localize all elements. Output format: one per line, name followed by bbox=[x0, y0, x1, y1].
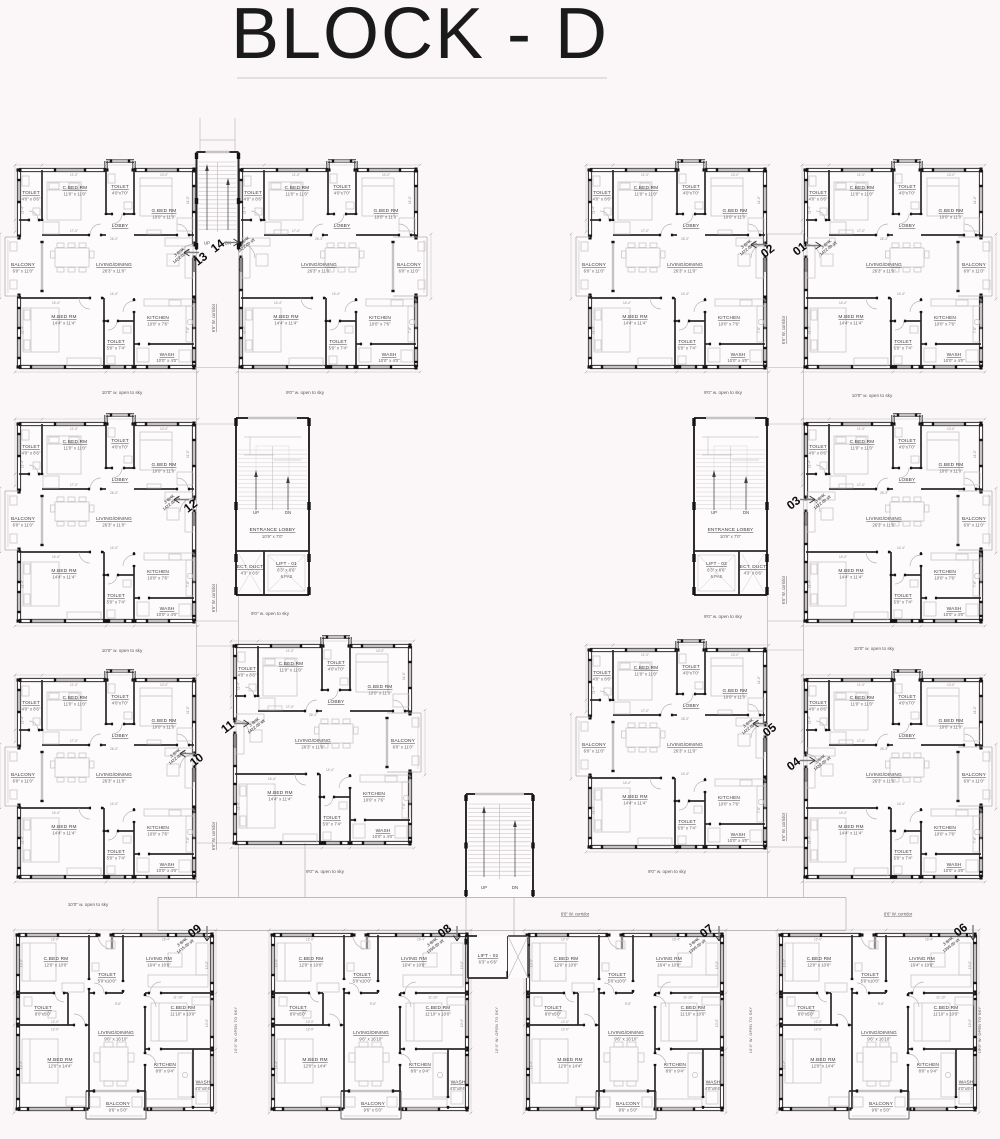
svg-text:9'0" w. open to sky: 9'0" w. open to sky bbox=[306, 869, 345, 874]
svg-text:12'0" x 10'0": 12'0" x 10'0" bbox=[299, 963, 323, 968]
svg-text:BALCONY: BALCONY bbox=[11, 772, 36, 778]
svg-text:M.BED RM: M.BED RM bbox=[810, 1057, 835, 1063]
svg-text:BALCONY: BALCONY bbox=[869, 1101, 894, 1107]
svg-text:11'-0": 11'-0" bbox=[186, 706, 190, 714]
svg-text:11'10" x 10'0": 11'10" x 10'0" bbox=[170, 1012, 196, 1017]
svg-text:5'0" x 7'4": 5'0" x 7'4" bbox=[894, 600, 913, 605]
svg-text:LIFT - 02: LIFT - 02 bbox=[478, 953, 499, 959]
svg-text:10'-0": 10'-0" bbox=[947, 683, 955, 687]
svg-text:11'-4": 11'-4" bbox=[243, 326, 247, 334]
svg-text:M.BED RM: M.BED RM bbox=[622, 794, 647, 800]
svg-text:11'-0": 11'-0" bbox=[70, 683, 78, 687]
svg-text:4'0"x7'0": 4'0"x7'0" bbox=[683, 191, 700, 196]
svg-text:10'0" x 7'6": 10'0" x 7'6" bbox=[934, 576, 956, 581]
svg-text:10'9" x 7'0": 10'9" x 7'0" bbox=[262, 534, 284, 539]
svg-text:10'0" w. open to sky: 10'0" w. open to sky bbox=[852, 393, 893, 398]
svg-text:G.BED RM: G.BED RM bbox=[723, 688, 748, 694]
svg-text:8'0"x5'0": 8'0"x5'0" bbox=[35, 1012, 52, 1017]
svg-text:10'-0": 10'-0" bbox=[160, 173, 168, 177]
svg-text:9'0" w. open to sky: 9'0" w. open to sky bbox=[251, 611, 290, 616]
svg-text:TOILET: TOILET bbox=[107, 849, 125, 855]
svg-text:12'-0": 12'-0" bbox=[561, 1028, 569, 1032]
svg-text:12'0" x 10'0": 12'0" x 10'0" bbox=[44, 963, 68, 968]
svg-text:10'0" x 4'0": 10'0" x 4'0" bbox=[156, 358, 178, 363]
svg-text:LOBBY: LOBBY bbox=[334, 223, 351, 229]
svg-text:TOILET: TOILET bbox=[323, 815, 341, 821]
svg-text:LIFT - 01: LIFT - 01 bbox=[276, 561, 297, 567]
svg-text:9'-6": 9'-6" bbox=[370, 1002, 376, 1006]
svg-text:14'-4": 14'-4" bbox=[20, 1061, 24, 1069]
svg-text:11'-0": 11'-0" bbox=[641, 653, 649, 657]
svg-text:6'0" x 11'0": 6'0" x 11'0" bbox=[13, 269, 34, 274]
svg-text:M.BED RM: M.BED RM bbox=[838, 314, 863, 320]
svg-text:6'0" x 11'0": 6'0" x 11'0" bbox=[13, 523, 34, 528]
svg-text:KITCHEN: KITCHEN bbox=[934, 315, 956, 321]
svg-text:11'0" x 11'0": 11'0" x 11'0" bbox=[635, 672, 658, 677]
svg-text:5'0" x 7'4": 5'0" x 7'4" bbox=[329, 346, 348, 351]
svg-text:14'4" x 11'4": 14'4" x 11'4" bbox=[623, 801, 647, 806]
svg-text:G.BED RM: G.BED RM bbox=[368, 684, 393, 690]
svg-text:C.BED RM: C.BED RM bbox=[850, 695, 875, 701]
svg-text:LOBBY: LOBBY bbox=[112, 223, 129, 229]
svg-text:BALCONY: BALCONY bbox=[11, 262, 36, 268]
svg-text:TOILET: TOILET bbox=[107, 339, 125, 345]
svg-text:11'-0": 11'-0" bbox=[973, 706, 977, 714]
svg-text:KITCHEN: KITCHEN bbox=[718, 315, 740, 321]
svg-text:TOILET: TOILET bbox=[809, 190, 827, 196]
svg-text:6'0" x 11'0": 6'0" x 11'0" bbox=[584, 269, 605, 274]
svg-text:11'-4": 11'-4" bbox=[808, 580, 812, 588]
svg-text:4'0"x7'0": 4'0"x7'0" bbox=[899, 445, 916, 450]
svg-text:ENTRANCE LOBBY: ENTRANCE LOBBY bbox=[708, 527, 754, 533]
svg-text:11'-4": 11'-4" bbox=[237, 682, 241, 690]
svg-text:BALCONY: BALCONY bbox=[582, 262, 607, 268]
svg-text:M.BED RM: M.BED RM bbox=[47, 1057, 72, 1063]
svg-text:C.BED RM: C.BED RM bbox=[850, 439, 875, 445]
svg-text:C.BED RM: C.BED RM bbox=[426, 1005, 451, 1011]
svg-text:26'3" x 11'0": 26'3" x 11'0" bbox=[307, 269, 331, 274]
svg-text:10'0" x 11'0": 10'0" x 11'0" bbox=[939, 215, 963, 220]
svg-text:11'10" x 10'0": 11'10" x 10'0" bbox=[425, 1012, 451, 1017]
svg-text:TOILET: TOILET bbox=[329, 339, 347, 345]
svg-text:M.BED RM: M.BED RM bbox=[273, 314, 298, 320]
svg-text:9'6" x 16'10": 9'6" x 16'10" bbox=[614, 1037, 638, 1042]
svg-text:TOILET: TOILET bbox=[327, 660, 345, 666]
svg-text:10'0" x 11'0": 10'0" x 11'0" bbox=[374, 215, 398, 220]
svg-text:26'3" x 11'0": 26'3" x 11'0" bbox=[872, 523, 896, 528]
svg-text:17'-0": 17'-0" bbox=[70, 229, 78, 233]
svg-text:12'-0": 12'-0" bbox=[306, 1020, 314, 1024]
svg-text:C.BED RM: C.BED RM bbox=[171, 1005, 196, 1011]
svg-text:KITCHEN: KITCHEN bbox=[147, 825, 169, 831]
svg-text:10'0" x 11'0": 10'0" x 11'0" bbox=[939, 469, 963, 474]
svg-text:4'3" x 6'6": 4'3" x 6'6" bbox=[241, 571, 260, 576]
svg-text:11'-4": 11'-4" bbox=[808, 460, 812, 468]
svg-text:10'0" x 4'0": 10'0" x 4'0" bbox=[943, 868, 965, 873]
svg-text:WASH: WASH bbox=[451, 1080, 466, 1086]
svg-text:10'0" x 4'0": 10'0" x 4'0" bbox=[727, 838, 749, 843]
svg-text:5'0" x 7'4": 5'0" x 7'4" bbox=[894, 856, 913, 861]
svg-text:11'10" x 10'0": 11'10" x 10'0" bbox=[680, 1012, 706, 1017]
svg-text:TOILET: TOILET bbox=[809, 444, 827, 450]
svg-text:10'-0": 10'-0" bbox=[968, 1019, 972, 1027]
svg-text:10'0" x 7'6": 10'0" x 7'6" bbox=[147, 832, 169, 837]
svg-text:10'0" x 7'6": 10'0" x 7'6" bbox=[934, 832, 956, 837]
svg-text:14'-4": 14'-4" bbox=[332, 292, 340, 296]
svg-text:10'0" x 7'6": 10'0" x 7'6" bbox=[718, 322, 740, 327]
svg-text:LIVING/DINING: LIVING/DINING bbox=[667, 262, 703, 268]
svg-text:8'0"x5'0": 8'0"x5'0" bbox=[545, 1012, 562, 1017]
svg-text:9'6" x 5'0": 9'6" x 5'0" bbox=[109, 1108, 128, 1113]
svg-text:10'0" w. open to sky: 10'0" w. open to sky bbox=[102, 390, 143, 395]
svg-text:11'0" x 11'0": 11'0" x 11'0" bbox=[286, 192, 309, 197]
svg-text:12'-0": 12'-0" bbox=[561, 1020, 569, 1024]
svg-text:10'-0": 10'-0" bbox=[160, 427, 168, 431]
svg-text:BALCONY: BALCONY bbox=[962, 516, 987, 522]
svg-text:10'0" x 7'6": 10'0" x 7'6" bbox=[147, 322, 169, 327]
svg-text:4'0" x 8'6": 4'0" x 8'6" bbox=[22, 451, 41, 456]
svg-text:C.BED RM: C.BED RM bbox=[634, 665, 659, 671]
svg-text:6.PAS: 6.PAS bbox=[281, 574, 293, 579]
svg-text:14'-4": 14'-4" bbox=[530, 1061, 534, 1069]
svg-text:11'-0": 11'-0" bbox=[402, 672, 406, 680]
svg-text:10'-0": 10'-0" bbox=[947, 173, 955, 177]
svg-text:TOILET: TOILET bbox=[608, 972, 626, 978]
svg-text:14'-4": 14'-4" bbox=[839, 555, 847, 559]
svg-text:7'-6": 7'-6" bbox=[186, 837, 190, 843]
svg-text:10'0" x 11'0": 10'0" x 11'0" bbox=[939, 725, 963, 730]
svg-text:10'0" x 11'0": 10'0" x 11'0" bbox=[152, 725, 176, 730]
svg-text:6'0" x 11'0": 6'0" x 11'0" bbox=[964, 523, 985, 528]
svg-text:10'-0": 10'-0" bbox=[783, 959, 787, 967]
svg-text:17'-0": 17'-0" bbox=[70, 483, 78, 487]
svg-text:26'-3": 26'-3" bbox=[110, 491, 118, 495]
svg-text:C.BED RM: C.BED RM bbox=[850, 185, 875, 191]
svg-text:BALCONY: BALCONY bbox=[391, 738, 416, 744]
svg-text:26'3" x 11'0": 26'3" x 11'0" bbox=[673, 269, 697, 274]
svg-text:16'-4": 16'-4" bbox=[417, 938, 425, 942]
svg-text:C.BED RM: C.BED RM bbox=[285, 185, 310, 191]
svg-text:C.BED RM: C.BED RM bbox=[554, 956, 579, 962]
svg-text:11'-0": 11'-0" bbox=[292, 173, 300, 177]
svg-text:BLOCK - D: BLOCK - D bbox=[231, 0, 609, 74]
svg-text:10'9" x 7'0": 10'9" x 7'0" bbox=[720, 534, 742, 539]
svg-text:12'-0": 12'-0" bbox=[51, 1028, 59, 1032]
svg-text:10'-0": 10'-0" bbox=[205, 961, 209, 969]
svg-text:6'6" W. corridor: 6'6" W. corridor bbox=[781, 315, 786, 344]
svg-text:4'0"x7'0": 4'0"x7'0" bbox=[112, 445, 129, 450]
svg-text:ENTRANCE LOBBY: ENTRANCE LOBBY bbox=[250, 527, 296, 533]
svg-text:6'6" W. corridor: 6'6" W. corridor bbox=[561, 912, 590, 917]
svg-text:LIVING RM: LIVING RM bbox=[656, 956, 682, 962]
svg-text:5'0" x 7'4": 5'0" x 7'4" bbox=[323, 822, 342, 827]
svg-text:LIVING/DINING: LIVING/DINING bbox=[861, 1030, 897, 1036]
svg-text:WASH: WASH bbox=[196, 1080, 211, 1086]
svg-text:UP: UP bbox=[253, 510, 259, 515]
svg-text:UP: UP bbox=[711, 510, 717, 515]
svg-text:TOILET: TOILET bbox=[289, 1005, 307, 1011]
svg-text:5'0" x 7'4": 5'0" x 7'4" bbox=[678, 826, 697, 831]
svg-text:5'0"x10'0": 5'0"x10'0" bbox=[353, 979, 372, 984]
svg-text:10'0" x 11'0": 10'0" x 11'0" bbox=[152, 469, 176, 474]
svg-text:5'0" x 7'4": 5'0" x 7'4" bbox=[107, 346, 126, 351]
svg-text:10'-0": 10'-0" bbox=[382, 173, 390, 177]
svg-text:10'0" x 7'6": 10'0" x 7'6" bbox=[718, 802, 740, 807]
svg-text:17'-0": 17'-0" bbox=[857, 739, 865, 743]
svg-text:11'-4": 11'-4" bbox=[808, 206, 812, 214]
svg-text:14'-4": 14'-4" bbox=[110, 546, 118, 550]
svg-text:4'0" x 8'6": 4'0" x 8'6" bbox=[244, 197, 263, 202]
svg-text:7'-6": 7'-6" bbox=[402, 803, 406, 809]
svg-text:LOBBY: LOBBY bbox=[899, 477, 916, 483]
svg-text:11'-10": 11'-10" bbox=[683, 996, 693, 1000]
svg-text:6'6" W. corridor: 6'6" W. corridor bbox=[211, 303, 216, 332]
svg-text:5'0"x10'0": 5'0"x10'0" bbox=[861, 979, 880, 984]
svg-text:C.BED RM: C.BED RM bbox=[44, 956, 69, 962]
svg-text:12'-0": 12'-0" bbox=[814, 1028, 822, 1032]
svg-text:KITCHEN: KITCHEN bbox=[934, 569, 956, 575]
svg-text:G.BED RM: G.BED RM bbox=[939, 462, 964, 468]
svg-text:6'0" x 11'0": 6'0" x 11'0" bbox=[393, 745, 414, 750]
svg-text:BALCONY: BALCONY bbox=[616, 1101, 641, 1107]
svg-text:TOILET: TOILET bbox=[682, 664, 700, 670]
svg-text:26'3" x 11'0": 26'3" x 11'0" bbox=[102, 779, 126, 784]
svg-text:11'-10": 11'-10" bbox=[173, 996, 183, 1000]
svg-text:4'0" x 8'6": 4'0" x 8'6" bbox=[809, 707, 828, 712]
svg-text:11'-4": 11'-4" bbox=[243, 206, 247, 214]
svg-text:14'-4": 14'-4" bbox=[839, 301, 847, 305]
svg-text:TOILET: TOILET bbox=[107, 593, 125, 599]
svg-text:LOBBY: LOBBY bbox=[112, 477, 129, 483]
svg-text:17'-0": 17'-0" bbox=[641, 229, 649, 233]
svg-text:10'-0": 10'-0" bbox=[715, 961, 719, 969]
svg-text:7'-6": 7'-6" bbox=[186, 581, 190, 587]
svg-text:10'0" W. OPEN TO SKY: 10'0" W. OPEN TO SKY bbox=[495, 1007, 499, 1054]
svg-text:11'-0": 11'-0" bbox=[186, 450, 190, 458]
svg-text:6'6" W. corridor: 6'6" W. corridor bbox=[884, 912, 913, 917]
svg-text:G.BED RM: G.BED RM bbox=[374, 208, 399, 214]
svg-text:KITCHEN: KITCHEN bbox=[369, 315, 391, 321]
svg-text:7'-6": 7'-6" bbox=[408, 327, 412, 333]
svg-text:4'0" x 8'6": 4'0" x 8'6" bbox=[809, 451, 828, 456]
svg-text:14'4" x 11'4": 14'4" x 11'4" bbox=[839, 575, 863, 580]
svg-text:11'-4": 11'-4" bbox=[237, 802, 241, 810]
svg-text:C.BED RM: C.BED RM bbox=[299, 956, 324, 962]
svg-text:BALCONY: BALCONY bbox=[106, 1101, 131, 1107]
svg-text:14'-4": 14'-4" bbox=[110, 292, 118, 296]
svg-text:4'0"x7'0": 4'0"x7'0" bbox=[683, 671, 700, 676]
svg-text:14'-4": 14'-4" bbox=[275, 1061, 279, 1069]
svg-text:4'0" x 8'6": 4'0" x 8'6" bbox=[593, 197, 612, 202]
svg-text:11'-0": 11'-0" bbox=[408, 196, 412, 204]
svg-text:4'0" x 8'6": 4'0" x 8'6" bbox=[22, 197, 41, 202]
svg-text:10'0" x 4'0": 10'0" x 4'0" bbox=[727, 358, 749, 363]
svg-text:TOILET: TOILET bbox=[593, 190, 611, 196]
svg-text:TOILET: TOILET bbox=[861, 972, 879, 978]
svg-text:26'3" x 11'0": 26'3" x 11'0" bbox=[102, 523, 126, 528]
svg-text:10'0" x 7'6": 10'0" x 7'6" bbox=[369, 322, 391, 327]
svg-text:14'-4": 14'-4" bbox=[897, 546, 905, 550]
svg-text:7'-6": 7'-6" bbox=[186, 327, 190, 333]
svg-text:10'0" x 4'0": 10'0" x 4'0" bbox=[943, 612, 965, 617]
svg-text:4'0" x 8'6": 4'0" x 8'6" bbox=[238, 673, 257, 678]
svg-text:C.BED RM: C.BED RM bbox=[63, 185, 88, 191]
svg-text:7'-6": 7'-6" bbox=[973, 327, 977, 333]
svg-text:12'0" x 10'0": 12'0" x 10'0" bbox=[554, 963, 578, 968]
svg-text:10'-0": 10'-0" bbox=[275, 959, 279, 967]
svg-text:10'0" W. OPEN TO SKY: 10'0" W. OPEN TO SKY bbox=[749, 1007, 753, 1054]
svg-text:14'4" x 11'4": 14'4" x 11'4" bbox=[623, 321, 647, 326]
svg-text:12'0" x 14'4": 12'0" x 14'4" bbox=[811, 1064, 835, 1069]
svg-text:11'-0": 11'-0" bbox=[186, 196, 190, 204]
svg-text:10'-0": 10'-0" bbox=[731, 653, 739, 657]
svg-text:TOILET: TOILET bbox=[111, 184, 129, 190]
svg-text:17'-0": 17'-0" bbox=[857, 229, 865, 233]
svg-text:6'3" x 6'6": 6'3" x 6'6" bbox=[479, 960, 498, 965]
svg-text:KITCHEN: KITCHEN bbox=[409, 1062, 431, 1068]
svg-text:G.BED RM: G.BED RM bbox=[152, 462, 177, 468]
svg-text:12'0" x 14'4": 12'0" x 14'4" bbox=[558, 1064, 582, 1069]
svg-text:11'-4": 11'-4" bbox=[592, 326, 596, 334]
svg-text:11'0" x 11'0": 11'0" x 11'0" bbox=[635, 192, 658, 197]
svg-text:9'6" x 5'0": 9'6" x 5'0" bbox=[872, 1108, 891, 1113]
svg-text:G.BED RM: G.BED RM bbox=[939, 208, 964, 214]
svg-text:TOILET: TOILET bbox=[22, 700, 40, 706]
svg-text:16'-4": 16'-4" bbox=[672, 938, 680, 942]
svg-text:9'6" x 5'0": 9'6" x 5'0" bbox=[364, 1108, 383, 1113]
svg-text:11'-4": 11'-4" bbox=[21, 580, 25, 588]
svg-text:9'6" x 16'10": 9'6" x 16'10" bbox=[359, 1037, 383, 1042]
svg-text:8'0"x5'0": 8'0"x5'0" bbox=[798, 1012, 815, 1017]
svg-text:14'-4": 14'-4" bbox=[52, 301, 60, 305]
svg-text:TOILET: TOILET bbox=[244, 190, 262, 196]
svg-text:10'0" x 4'0": 10'0" x 4'0" bbox=[156, 612, 178, 617]
svg-text:BALCONY: BALCONY bbox=[962, 262, 987, 268]
svg-text:TOILET: TOILET bbox=[898, 184, 916, 190]
svg-text:6.PAS: 6.PAS bbox=[711, 574, 723, 579]
svg-text:TOILET: TOILET bbox=[111, 694, 129, 700]
svg-text:11'0" x 11'0": 11'0" x 11'0" bbox=[64, 446, 87, 451]
svg-text:10'0" x 4'0": 10'0" x 4'0" bbox=[943, 358, 965, 363]
svg-text:11'-4": 11'-4" bbox=[21, 326, 25, 334]
svg-text:4'0"x7'0": 4'0"x7'0" bbox=[899, 701, 916, 706]
svg-text:4'0"x7'0": 4'0"x7'0" bbox=[334, 191, 351, 196]
svg-text:4'0"x9'4": 4'0"x9'4" bbox=[705, 1086, 722, 1091]
svg-text:LIVING/DINING: LIVING/DINING bbox=[866, 262, 902, 268]
svg-text:10'0" W. OPEN TO SKY: 10'0" W. OPEN TO SKY bbox=[234, 1007, 238, 1054]
svg-text:C.BED RM: C.BED RM bbox=[681, 1005, 706, 1011]
svg-text:M.BED RM: M.BED RM bbox=[622, 314, 647, 320]
svg-text:11'-4": 11'-4" bbox=[808, 716, 812, 724]
svg-text:11'-4": 11'-4" bbox=[21, 716, 25, 724]
svg-text:14'-4": 14'-4" bbox=[681, 292, 689, 296]
svg-text:11'-0": 11'-0" bbox=[70, 427, 78, 431]
svg-text:9'0" w. open to sky: 9'0" w. open to sky bbox=[286, 390, 325, 395]
svg-text:16'-4": 16'-4" bbox=[162, 938, 170, 942]
svg-text:DN: DN bbox=[743, 510, 749, 515]
svg-text:26'-3": 26'-3" bbox=[681, 237, 689, 241]
svg-text:14'-4": 14'-4" bbox=[897, 292, 905, 296]
svg-text:5'0" x 7'4": 5'0" x 7'4" bbox=[107, 856, 126, 861]
svg-text:10'-0": 10'-0" bbox=[968, 961, 972, 969]
svg-text:26'-3": 26'-3" bbox=[315, 237, 323, 241]
svg-text:6'0" x 11'0": 6'0" x 11'0" bbox=[399, 269, 420, 274]
svg-text:6'6" W. corridor: 6'6" W. corridor bbox=[211, 821, 216, 850]
svg-text:TOILET: TOILET bbox=[894, 339, 912, 345]
svg-text:6'0" x 11'0": 6'0" x 11'0" bbox=[964, 779, 985, 784]
svg-text:TOILET: TOILET bbox=[809, 700, 827, 706]
svg-text:TOILET: TOILET bbox=[353, 972, 371, 978]
svg-text:WASH: WASH bbox=[706, 1080, 721, 1086]
svg-text:26'-3": 26'-3" bbox=[110, 747, 118, 751]
svg-text:KITCHEN: KITCHEN bbox=[154, 1062, 176, 1068]
svg-text:M.BED RM: M.BED RM bbox=[51, 314, 76, 320]
svg-text:LOBBY: LOBBY bbox=[899, 733, 916, 739]
svg-text:12'-0": 12'-0" bbox=[51, 938, 59, 942]
svg-text:TOILET: TOILET bbox=[22, 190, 40, 196]
svg-text:6'3" x 6'6": 6'3" x 6'6" bbox=[277, 568, 296, 573]
svg-text:8'0" x 9'4": 8'0" x 9'4" bbox=[411, 1069, 430, 1074]
svg-text:TOILET: TOILET bbox=[34, 1005, 52, 1011]
svg-text:11'-4": 11'-4" bbox=[808, 836, 812, 844]
svg-text:10'0" x 7'6": 10'0" x 7'6" bbox=[147, 576, 169, 581]
svg-text:LIVING/DINING: LIVING/DINING bbox=[353, 1030, 389, 1036]
svg-text:LIVING/DINING: LIVING/DINING bbox=[295, 738, 331, 744]
svg-text:14'-4": 14'-4" bbox=[623, 781, 631, 785]
svg-text:10'-0": 10'-0" bbox=[947, 427, 955, 431]
svg-text:26'3" x 11'0": 26'3" x 11'0" bbox=[301, 745, 325, 750]
svg-text:26'3" x 11'0": 26'3" x 11'0" bbox=[872, 779, 896, 784]
svg-text:12'-0": 12'-0" bbox=[814, 938, 822, 942]
svg-text:6'0" x 11'0": 6'0" x 11'0" bbox=[964, 269, 985, 274]
svg-text:7'-6": 7'-6" bbox=[973, 837, 977, 843]
svg-text:TOILET: TOILET bbox=[593, 670, 611, 676]
svg-text:4'0"x7'0": 4'0"x7'0" bbox=[112, 191, 129, 196]
svg-text:M.BED RM: M.BED RM bbox=[838, 824, 863, 830]
svg-text:11'-4": 11'-4" bbox=[808, 326, 812, 334]
svg-text:9'0" w. open to sky: 9'0" w. open to sky bbox=[704, 614, 743, 619]
svg-text:M.BED RM: M.BED RM bbox=[51, 568, 76, 574]
svg-text:KITCHEN: KITCHEN bbox=[664, 1062, 686, 1068]
svg-text:10'0" x 7'6": 10'0" x 7'6" bbox=[363, 798, 385, 803]
svg-text:TOILET: TOILET bbox=[238, 666, 256, 672]
svg-text:14'-4": 14'-4" bbox=[268, 777, 276, 781]
svg-text:10'-0": 10'-0" bbox=[376, 649, 384, 653]
svg-text:26'3" x 11'0": 26'3" x 11'0" bbox=[673, 749, 697, 754]
svg-text:7'-6": 7'-6" bbox=[757, 807, 761, 813]
svg-text:11'0" x 11'0": 11'0" x 11'0" bbox=[851, 192, 874, 197]
svg-text:11'-0": 11'-0" bbox=[973, 450, 977, 458]
svg-text:5'0" x 7'4": 5'0" x 7'4" bbox=[894, 346, 913, 351]
svg-text:14'4" x 11'4": 14'4" x 11'4" bbox=[52, 575, 76, 580]
svg-text:11'-0": 11'-0" bbox=[70, 173, 78, 177]
svg-text:11'-0": 11'-0" bbox=[757, 196, 761, 204]
svg-text:10'-0": 10'-0" bbox=[731, 173, 739, 177]
svg-text:10'0" W. OPEN TO SKY: 10'0" W. OPEN TO SKY bbox=[978, 1007, 982, 1054]
svg-text:8'0" x 9'4": 8'0" x 9'4" bbox=[156, 1069, 175, 1074]
svg-text:10'0" x 4'0": 10'0" x 4'0" bbox=[378, 358, 400, 363]
svg-text:5'0"x10'0": 5'0"x10'0" bbox=[608, 979, 627, 984]
svg-text:17'-0": 17'-0" bbox=[70, 739, 78, 743]
svg-text:11'-0": 11'-0" bbox=[857, 427, 865, 431]
svg-text:6'6" W. corridor: 6'6" W. corridor bbox=[781, 575, 786, 604]
svg-text:LIVING/DINING: LIVING/DINING bbox=[866, 772, 902, 778]
svg-text:4'0"x9'4": 4'0"x9'4" bbox=[958, 1086, 975, 1091]
svg-text:17'-0": 17'-0" bbox=[857, 483, 865, 487]
svg-text:LOBBY: LOBBY bbox=[328, 699, 345, 705]
svg-text:KITCHEN: KITCHEN bbox=[917, 1062, 939, 1068]
svg-text:9'-6": 9'-6" bbox=[115, 1002, 121, 1006]
